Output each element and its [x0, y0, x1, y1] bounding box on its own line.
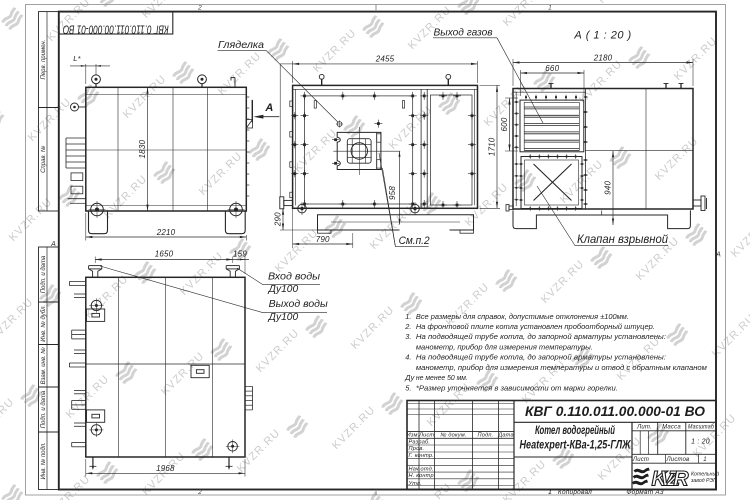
svg-text:KVZR: KVZR — [652, 468, 690, 491]
svg-text:На подводящей трубе котла, до: На подводящей трубе котла, до запорной а… — [416, 332, 666, 341]
svg-text:*Размер уточняется в зависимос: *Размер уточняется в зависимости от марк… — [416, 383, 618, 392]
svg-text:Пров.: Пров. — [409, 446, 425, 452]
svg-text:2210: 2210 — [156, 228, 176, 237]
svg-text:№ докум.: № докум. — [440, 433, 466, 439]
svg-text:1968: 1968 — [156, 464, 175, 473]
svg-text:1: 1 — [548, 4, 552, 11]
svg-text:L*: L* — [73, 54, 81, 63]
svg-text:2: 2 — [197, 489, 202, 496]
svg-text:600: 600 — [500, 117, 509, 131]
svg-text:1 : 20: 1 : 20 — [691, 439, 710, 446]
svg-text:На подводящей трубе котла, до: На подводящей трубе котла, до запорной а… — [416, 353, 666, 362]
svg-text:Лист: Лист — [632, 457, 649, 463]
svg-text:1710: 1710 — [488, 137, 497, 156]
svg-text:КВГ 0.110.011.00.000-01 ВО: КВГ 0.110.011.00.000-01 ВО — [63, 22, 169, 36]
svg-text:1650: 1650 — [155, 250, 174, 259]
svg-text:Выход воды: Выход воды — [269, 299, 329, 310]
svg-text:Инв. № подл.: Инв. № подл. — [40, 442, 47, 479]
svg-text:940: 940 — [604, 181, 613, 195]
svg-text:манометр, прибор для измерения: манометр, прибор для измерения температу… — [416, 342, 593, 351]
svg-text:1: 1 — [548, 489, 552, 496]
svg-text:2: 2 — [197, 4, 202, 11]
svg-text:Изм.: Изм. — [407, 433, 420, 439]
svg-text:159: 159 — [233, 250, 247, 259]
svg-text:Клапан взрывной: Клапан взрывной — [577, 234, 669, 246]
svg-text:Подп. и дата: Подп. и дата — [41, 390, 47, 428]
svg-text:А: А — [715, 252, 721, 259]
svg-text:5.: 5. — [405, 383, 411, 392]
svg-text:Взам. инв. №: Взам. инв. № — [40, 347, 47, 385]
svg-text:Подп. и дата: Подп. и дата — [41, 255, 47, 293]
svg-text:Heatexpert-КВа-1,25-ГЛЖ: Heatexpert-КВа-1,25-ГЛЖ — [520, 440, 632, 452]
svg-text:290: 290 — [274, 212, 283, 227]
svg-text:Котельный: Котельный — [691, 471, 719, 478]
svg-text:Перв. примен.: Перв. примен. — [41, 40, 47, 80]
svg-text:3.: 3. — [405, 332, 411, 341]
svg-text:Ду100: Ду100 — [268, 312, 299, 323]
svg-text:Утв.: Утв. — [408, 481, 423, 487]
svg-text:790: 790 — [316, 235, 330, 244]
svg-text:958: 958 — [388, 186, 397, 200]
svg-text:Выход газов: Выход газов — [434, 27, 493, 39]
svg-text:завод РЭП: завод РЭП — [690, 478, 717, 484]
svg-text:Формат А3: Формат А3 — [626, 489, 664, 496]
svg-text:Лист: Лист — [418, 433, 434, 439]
svg-text:Ду100: Ду100 — [268, 284, 299, 295]
svg-text:1.: 1. — [405, 312, 411, 321]
svg-text:А ( 1 : 20 ): А ( 1 : 20 ) — [573, 30, 631, 42]
svg-text:4.: 4. — [405, 353, 411, 362]
svg-text:КВГ 0.110.011.00.000-01 ВО: КВГ 0.110.011.00.000-01 ВО — [525, 404, 706, 419]
svg-text:См.п.2: См.п.2 — [399, 235, 430, 247]
svg-text:2180: 2180 — [593, 53, 613, 62]
svg-text:Копировал: Копировал — [558, 489, 592, 496]
svg-text:А: А — [264, 102, 273, 114]
svg-text:Справ. №: Справ. № — [40, 145, 47, 173]
svg-text:1: 1 — [703, 457, 707, 463]
svg-text:Инв. № дубл.: Инв. № дубл. — [40, 305, 47, 342]
svg-text:Г. контр.: Г. контр. — [409, 453, 434, 459]
svg-text:Масса: Масса — [662, 425, 681, 431]
svg-text:1830: 1830 — [138, 140, 147, 159]
svg-text:Листов: Листов — [665, 457, 689, 463]
svg-text:Вход воды: Вход воды — [268, 272, 321, 283]
svg-text:Котел водогрейный: Котел водогрейный — [535, 425, 615, 437]
svg-text:Лит.: Лит. — [636, 425, 652, 431]
svg-text:Дата: Дата — [497, 433, 514, 439]
svg-text:Н. контр.: Н. контр. — [409, 473, 436, 479]
svg-text:Нач.отд.: Нач.отд. — [409, 466, 434, 472]
svg-text:Все размеры для справок, допус: Все размеры для справок, допустимые откл… — [416, 312, 629, 321]
svg-text:Разраб.: Разраб. — [409, 439, 431, 445]
svg-text:2455: 2455 — [375, 55, 395, 64]
svg-text:660: 660 — [545, 64, 559, 73]
svg-text:не менее 50 мм.: не менее 50 мм. — [416, 373, 468, 382]
svg-text:На фронтовой плите котла устан: На фронтовой плите котла установлен проб… — [416, 322, 655, 331]
svg-text:манометр, прибор для измерения: манометр, прибор для измерения температу… — [416, 363, 707, 372]
svg-text:2.: 2. — [404, 322, 411, 331]
svg-text:Подп.: Подп. — [478, 433, 494, 439]
svg-text:Масштаб: Масштаб — [688, 425, 714, 431]
svg-text:Гляделка: Гляделка — [218, 39, 264, 51]
svg-text:Ду: Ду — [404, 373, 415, 382]
